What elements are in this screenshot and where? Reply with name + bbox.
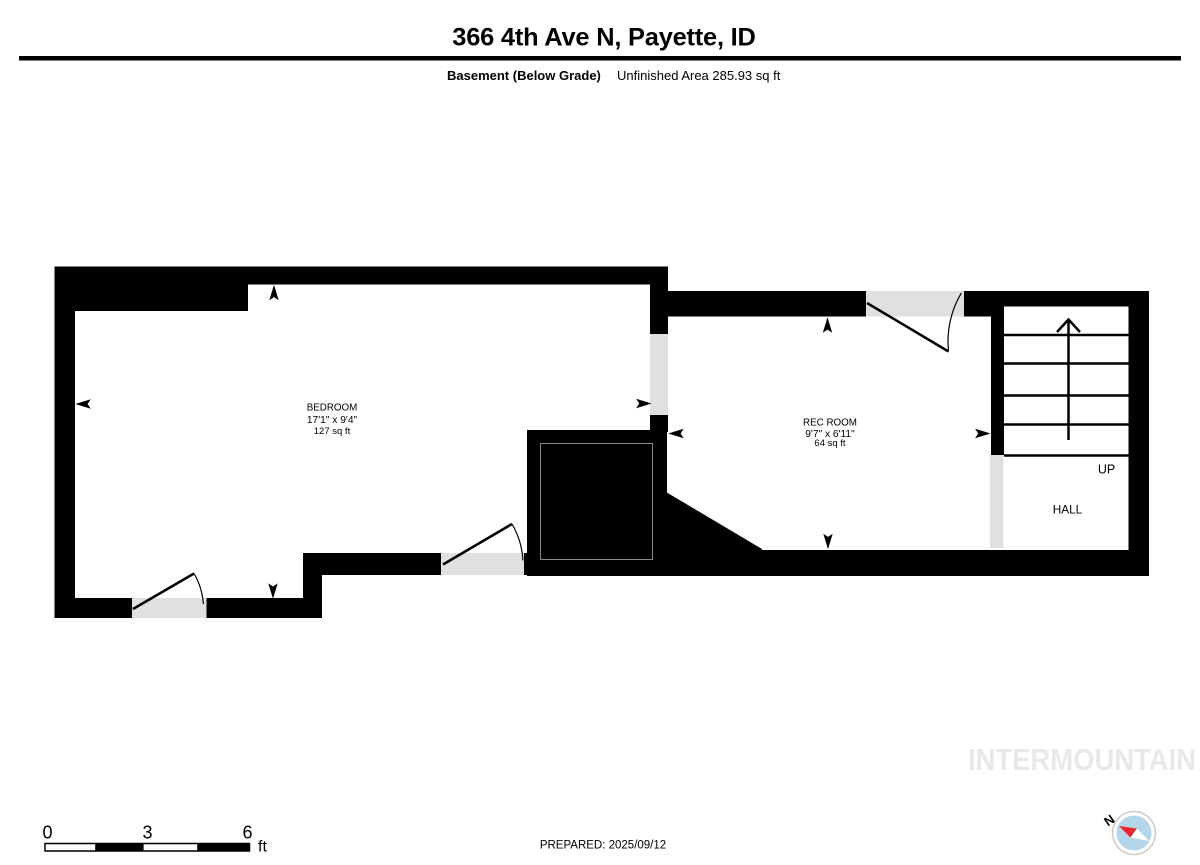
svg-text:PREPARED: 2025/09/12: PREPARED: 2025/09/12 bbox=[540, 840, 666, 852]
svg-text:ft: ft bbox=[258, 839, 267, 856]
svg-text:Basement (Below Grade): Basement (Below Grade) bbox=[447, 68, 601, 83]
svg-text:6: 6 bbox=[242, 823, 252, 843]
svg-text:UP: UP bbox=[1098, 463, 1115, 477]
svg-text:127 sq ft: 127 sq ft bbox=[314, 426, 351, 437]
svg-text:0: 0 bbox=[42, 823, 52, 843]
svg-text:HALL: HALL bbox=[1053, 503, 1083, 517]
svg-text:BEDROOM: BEDROOM bbox=[307, 403, 358, 414]
svg-text:17'1" x 9'4": 17'1" x 9'4" bbox=[307, 415, 358, 426]
svg-text:Unfinished Area 285.93 sq ft: Unfinished Area 285.93 sq ft bbox=[617, 68, 781, 83]
svg-text:INTERMOUNTAIN: INTERMOUNTAIN bbox=[968, 743, 1196, 777]
svg-text:366 4th Ave N, Payette, ID: 366 4th Ave N, Payette, ID bbox=[452, 24, 755, 52]
svg-text:REC ROOM: REC ROOM bbox=[803, 418, 857, 429]
svg-text:64 sq ft: 64 sq ft bbox=[814, 438, 846, 449]
svg-text:3: 3 bbox=[142, 823, 152, 843]
